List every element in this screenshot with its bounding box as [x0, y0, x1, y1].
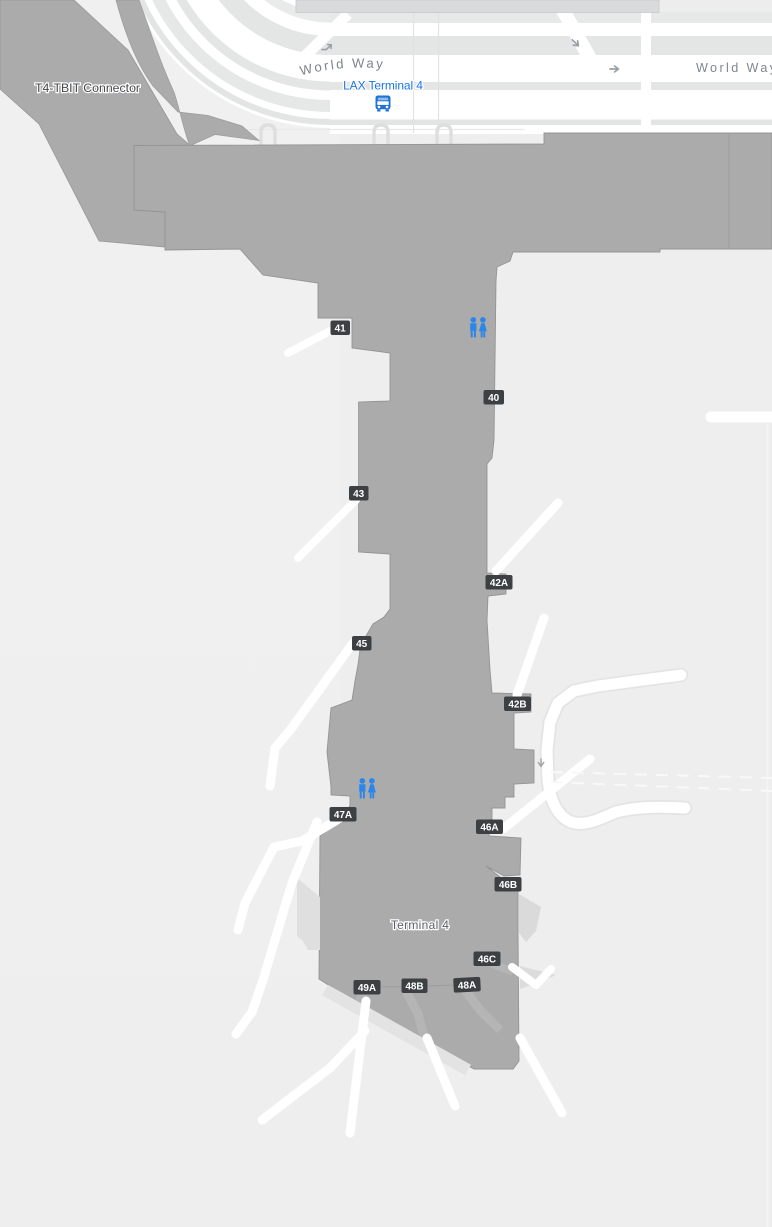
svg-text:49A: 49A — [358, 983, 376, 994]
svg-text:Terminal 4: Terminal 4 — [391, 918, 449, 932]
svg-text:47A: 47A — [334, 810, 352, 821]
svg-text:46C: 46C — [478, 955, 496, 966]
svg-text:40: 40 — [488, 393, 500, 404]
svg-text:46B: 46B — [499, 880, 517, 891]
svg-text:T4-TBIT Connector: T4-TBIT Connector — [35, 81, 140, 95]
svg-text:48B: 48B — [405, 982, 423, 993]
svg-text:45: 45 — [356, 639, 368, 650]
svg-text:43: 43 — [353, 489, 365, 500]
svg-text:48A: 48A — [458, 980, 477, 992]
svg-text:46A: 46A — [480, 823, 498, 834]
svg-text:42A: 42A — [490, 578, 508, 589]
svg-text:World Way: World Way — [696, 61, 772, 75]
svg-text:41: 41 — [335, 324, 347, 335]
svg-text:42B: 42B — [508, 700, 526, 711]
svg-text:LAX Terminal 4: LAX Terminal 4 — [343, 79, 423, 93]
